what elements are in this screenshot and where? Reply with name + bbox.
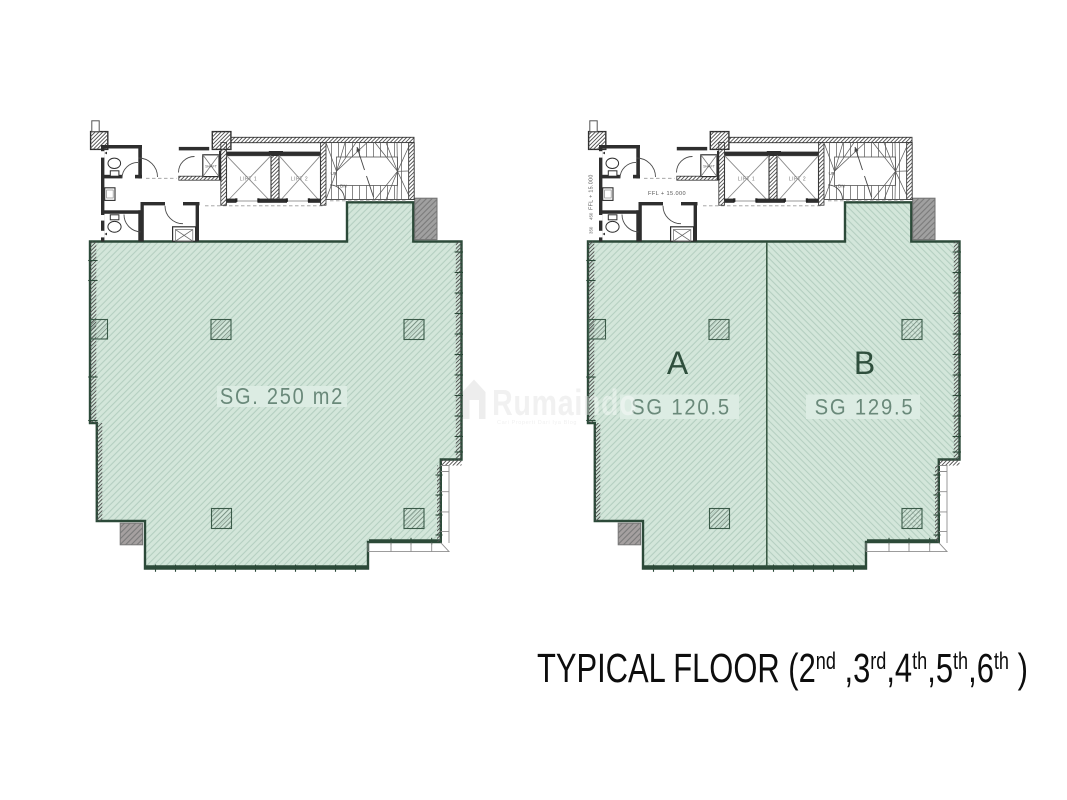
svg-text:UP: UP: [829, 171, 835, 176]
svg-text:B: B: [854, 345, 875, 381]
svg-text:450: 450: [589, 212, 594, 220]
svg-text:DN: DN: [340, 184, 347, 189]
svg-text:LIFT 2: LIFT 2: [789, 177, 806, 183]
svg-text:SHAFT: SHAFT: [205, 165, 218, 169]
svg-text:LIFT 2: LIFT 2: [291, 177, 308, 183]
svg-text:FFL + 15.000: FFL + 15.000: [589, 174, 595, 210]
svg-text:SG. 250 m2: SG. 250 m2: [220, 383, 344, 410]
svg-text:LIFT 1: LIFT 1: [240, 177, 257, 183]
svg-text:350: 350: [589, 226, 594, 234]
svg-text:UP: UP: [331, 171, 337, 176]
svg-text:TYPICAL FLOOR (2nd ,3rd,4th,5t: TYPICAL FLOOR (2nd ,3rd,4th,5th,6th ): [537, 645, 1028, 691]
svg-text:DN: DN: [838, 184, 845, 189]
svg-text:LIFT 1: LIFT 1: [738, 177, 755, 183]
svg-text:SG 129.5: SG 129.5: [815, 395, 915, 420]
svg-text:Rumaindo: Rumaindo: [492, 383, 637, 423]
svg-text:SG 120.5: SG 120.5: [631, 395, 731, 420]
svg-text:FFL + 15.000: FFL + 15.000: [648, 191, 686, 197]
svg-text:SHAFT: SHAFT: [703, 165, 716, 169]
svg-text:A: A: [667, 345, 689, 381]
